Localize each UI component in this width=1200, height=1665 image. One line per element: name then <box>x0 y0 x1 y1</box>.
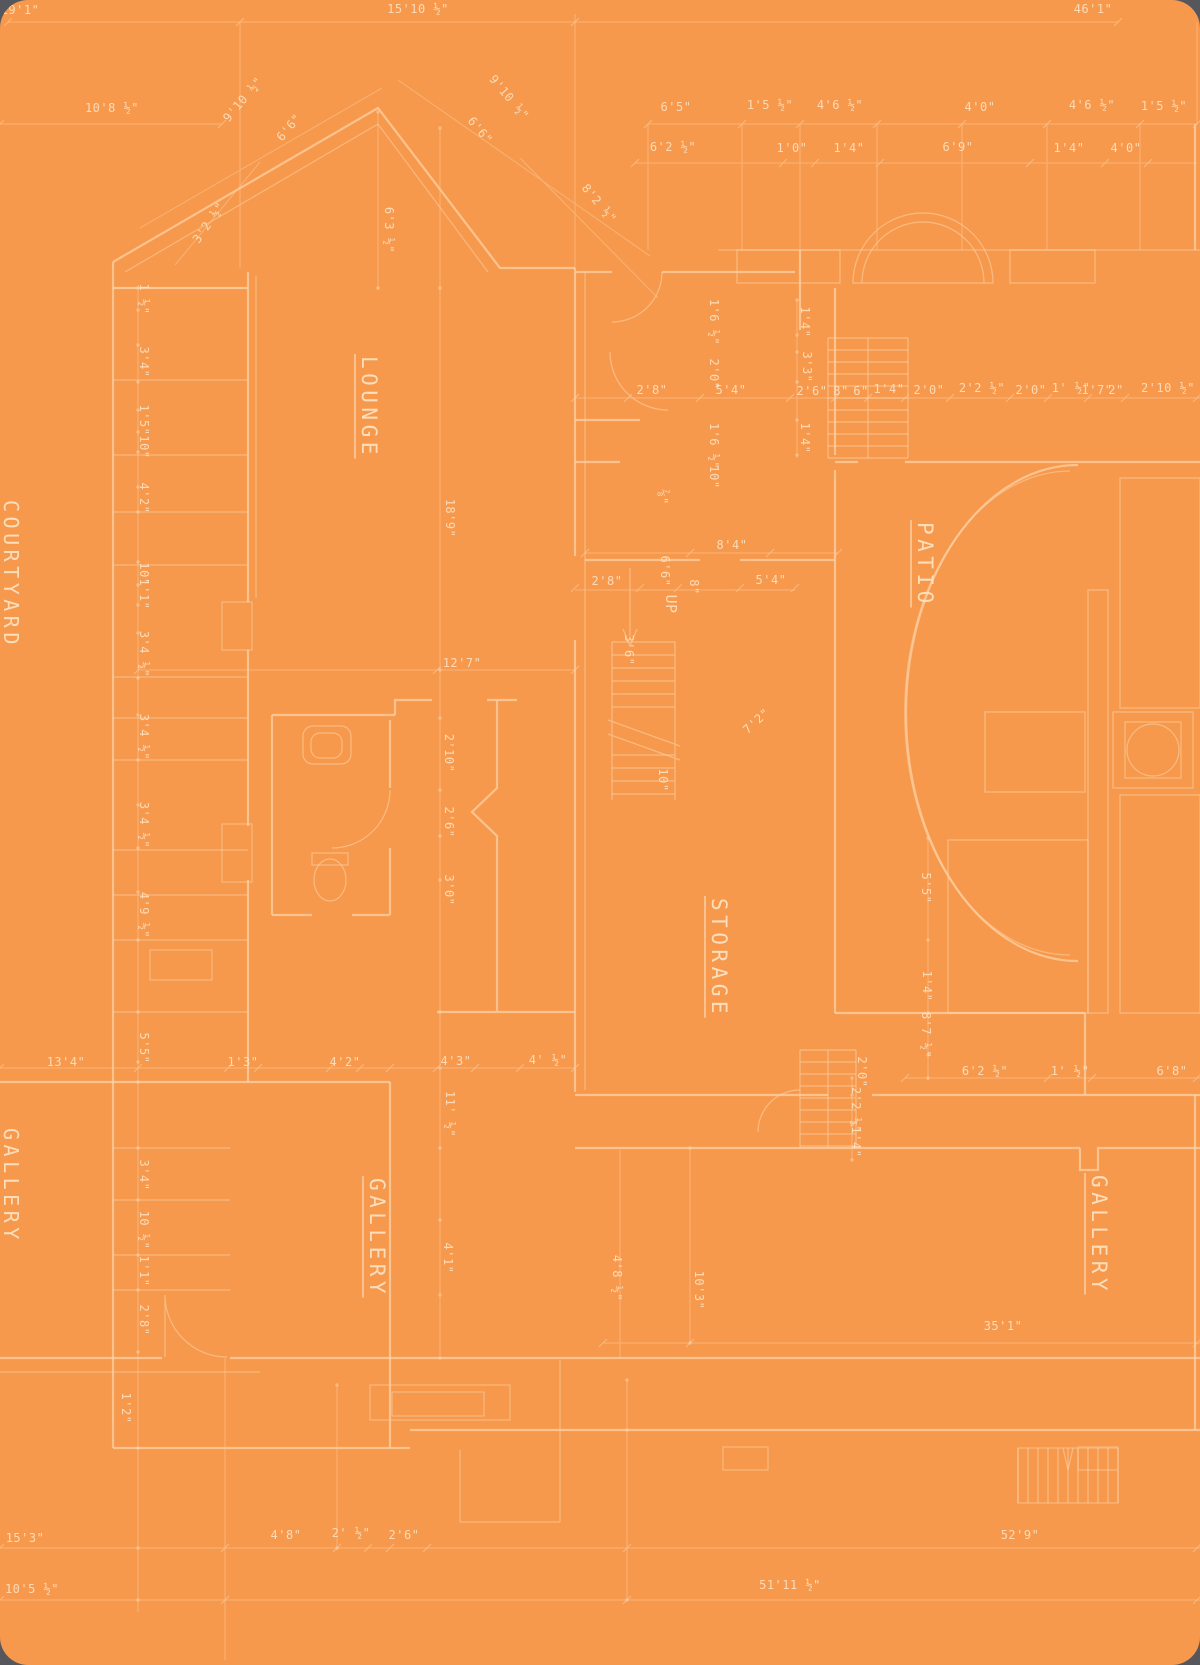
dimension-label: 1'1" <box>137 579 151 610</box>
fountain-basin <box>1127 724 1179 776</box>
dimension-label: 1'2" <box>119 1393 133 1424</box>
dimension-label: 6'2 ½" <box>962 1064 1008 1078</box>
dimension-label: 7'2" <box>740 705 772 736</box>
dimension-label: 6'8" <box>1157 1064 1188 1078</box>
dimension-label: 3'4 ½" <box>137 802 151 848</box>
dimension-label: 8" <box>833 384 848 398</box>
dimension-label: 15'10 ½" <box>387 2 449 16</box>
dimension-label: 11' ½" <box>443 1091 457 1137</box>
roof-bay-inner <box>125 124 488 272</box>
dimension-label: 2'0" <box>1016 383 1047 397</box>
dimension-label: 1'4" <box>1054 141 1085 155</box>
dimension-label: 3'3" <box>800 352 814 383</box>
dimension-label: 6'6" <box>658 556 672 587</box>
dimension-label: 3'4 ½" <box>137 714 151 760</box>
dimension-label: 10'8 ½" <box>85 101 139 115</box>
room-label-group: GALLERY <box>0 1126 23 1244</box>
room-label-group: GALLERY <box>1085 1173 1111 1295</box>
patio-paving-tiles <box>948 840 1088 1013</box>
room-label: GALLERY <box>0 1128 23 1244</box>
dimension-label: 8'7 ½" <box>919 1012 933 1058</box>
patio-paving-stones <box>985 712 1085 792</box>
roof-bay-outer <box>113 108 575 268</box>
dimension-label: 3'4 ½" <box>137 631 151 677</box>
dimension-label: 6'5" <box>661 100 692 114</box>
dimension-label: 2'10" <box>442 734 456 773</box>
dimension-label: 13'4" <box>47 1055 86 1069</box>
lounge-closet-wall <box>437 700 575 1012</box>
dimension-label: 4'6 ½" <box>817 98 863 112</box>
dimension-label: 2'6" <box>797 384 828 398</box>
dimension-label: 2'2 ½" <box>959 381 1005 395</box>
dimension-label: 1'4" <box>849 1127 863 1158</box>
dimension-line-grid <box>0 14 1200 1660</box>
dimension-label: 3'4" <box>137 347 151 378</box>
porch-walls <box>460 1360 560 1522</box>
fountain-inner <box>1125 722 1181 778</box>
door-arc <box>612 272 662 322</box>
dimension-label: 10" <box>137 435 151 458</box>
dimension-label: 12'7" <box>443 656 482 670</box>
dimension-label: 1'5 ½" <box>747 98 793 112</box>
dimension-label: 52'9" <box>1001 1528 1040 1542</box>
dimension-label: 4'8 ½" <box>610 1255 624 1301</box>
dimension-label: 2'0" <box>914 383 945 397</box>
dimension-label: 6'2 ½" <box>650 140 696 154</box>
dimension-label: 2'0" <box>855 1057 869 1088</box>
dimension-label: 4'8" <box>271 1528 302 1542</box>
room-label: GALLERY <box>365 1178 389 1298</box>
dimension-label: 4'3" <box>441 1054 472 1068</box>
dimension-label: 6'3 ½" <box>382 207 396 253</box>
dimension-label: 1'4" <box>920 971 934 1002</box>
dimension-label: 1'5 ½" <box>1141 99 1187 113</box>
room-label: STORAGE <box>707 898 731 1018</box>
dimension-label: 10'3" <box>692 1271 706 1310</box>
dimension-label: 10'5 ½" <box>5 1582 59 1596</box>
patio-paving-stones <box>1120 478 1200 708</box>
dimension-label: 1' ½" <box>1051 1064 1090 1078</box>
tick-marks-and-treads <box>0 18 1200 1604</box>
planter <box>737 250 840 283</box>
dimension-label: 8" <box>687 579 701 594</box>
room-label-group: COURTYARD <box>0 498 23 649</box>
dimension-label: 2'6" <box>389 1528 420 1542</box>
storage-top-wall <box>575 420 835 560</box>
dimension-label: 4'9 ½" <box>137 892 151 938</box>
dimension-label: 3'4" <box>137 1160 151 1191</box>
porch-railing <box>1018 1448 1118 1503</box>
sink-basin <box>311 733 342 758</box>
blueprint-sheet: 19'1"15'10 ½"46'1"10'8 ½"9'10 ½"6'6"9'10… <box>0 0 1200 1665</box>
left-wing-partition-walls <box>113 288 248 1290</box>
dimension-label: 4'6 ½" <box>1069 98 1115 112</box>
dimension-label: 4'1" <box>441 1243 455 1274</box>
dimension-label: 46'1" <box>1074 2 1113 16</box>
dimension-label: 1'4" <box>834 141 865 155</box>
room-label-group: LOUNGE <box>355 354 381 459</box>
dimension-label: 1'4" <box>798 307 812 338</box>
dimension-label: 1'1" <box>137 1256 151 1287</box>
dimension-label: 6" <box>853 384 868 398</box>
dimension-label: 2'8" <box>137 1305 151 1336</box>
room-label: COURTYARD <box>0 500 23 649</box>
dimension-label: 5'4" <box>716 383 747 397</box>
door-arc <box>758 1090 800 1132</box>
bathroom-walls <box>272 700 432 915</box>
dimension-label: 2" <box>1108 383 1123 397</box>
dimension-label: 2'10 ½" <box>1141 381 1195 395</box>
dimension-label: 6'9" <box>943 140 974 154</box>
room-label-group: GALLERY <box>363 1176 389 1298</box>
dimension-label: 2'8" <box>637 383 668 397</box>
stair-direction-label: UP <box>662 594 680 613</box>
dimension-label: 1'0" <box>777 141 808 155</box>
dimension-label: 10" <box>707 465 721 488</box>
room-label-group: STORAGE <box>705 896 731 1018</box>
dimension-label: 10" <box>656 768 670 791</box>
dimension-label: 4'2" <box>330 1055 361 1069</box>
dimension-label: 4' ½" <box>529 1053 568 1067</box>
brick-arch <box>853 213 993 283</box>
dimension-label: 9'10 ½" <box>220 74 265 124</box>
gallery-top-wall <box>575 1148 1200 1170</box>
dimension-label: 1'6 ½" <box>707 423 721 469</box>
dimension-label: 8'2 ½" <box>579 181 620 226</box>
door-arc <box>332 790 390 848</box>
dimension-label: 1'3" <box>228 1055 259 1069</box>
dimension-label: 5'4" <box>756 573 787 587</box>
dimension-label: ⅞" <box>656 489 670 504</box>
dimension-label: 4'0" <box>1111 141 1142 155</box>
dimension-label: 5'5" <box>919 873 933 904</box>
dimension-label: 2'6" <box>442 807 456 838</box>
room-label-group: PATIO <box>911 520 937 608</box>
dimension-label: 5'5" <box>137 1033 151 1064</box>
dimension-label: 19'1" <box>1 3 40 17</box>
dimension-label: 2'8" <box>592 574 623 588</box>
room-label: LOUNGE <box>357 356 381 459</box>
stair-treads <box>612 338 908 1146</box>
dimension-label: 4'0" <box>965 100 996 114</box>
dimension-lines <box>0 14 1200 1660</box>
dimension-label: 10 ½" <box>137 1211 151 1250</box>
window-frames <box>150 602 1118 1503</box>
dimension-label: 18'9" <box>443 499 457 538</box>
dimension-label: 51'11 ½" <box>759 1578 821 1592</box>
planter <box>1010 250 1095 283</box>
dimension-label: 1 ½" <box>137 284 151 315</box>
floor-plan-drawing: 19'1"15'10 ½"46'1"10'8 ½"9'10 ½"6'6"9'10… <box>0 0 1200 1665</box>
room-label: GALLERY <box>1087 1175 1111 1295</box>
patio-paving-tiles <box>1088 590 1108 1013</box>
dimension-label: 1'5" <box>137 405 151 436</box>
dimension-label: 4'2" <box>137 483 151 514</box>
dimension-label: 3'0" <box>442 875 456 906</box>
walls <box>0 108 1200 1522</box>
dimension-label: 1'4" <box>874 382 905 396</box>
dimension-label: 6'6" <box>274 111 305 144</box>
dimension-label: 8'4" <box>717 538 748 552</box>
dimension-label: 9'10 ½" <box>486 72 531 122</box>
patio-paving-stones <box>1120 795 1200 1013</box>
dimension-label: 1'4" <box>798 423 812 454</box>
door-arc <box>610 352 668 410</box>
stair-rails <box>608 338 908 1148</box>
door-arc <box>165 1295 227 1357</box>
dimension-label: 35'1" <box>984 1319 1023 1333</box>
brick-arch-inner <box>862 222 984 283</box>
dimension-tick-marks <box>0 18 1200 1604</box>
dimension-label: 1'6 ½" <box>707 299 721 345</box>
dimension-label: 2' ½" <box>332 1526 371 1540</box>
patio-bottom-wall <box>835 1013 1085 1095</box>
dimension-label: 3'6" <box>622 635 636 666</box>
dimension-label: 15'3" <box>6 1531 45 1545</box>
room-label: PATIO <box>913 522 937 608</box>
